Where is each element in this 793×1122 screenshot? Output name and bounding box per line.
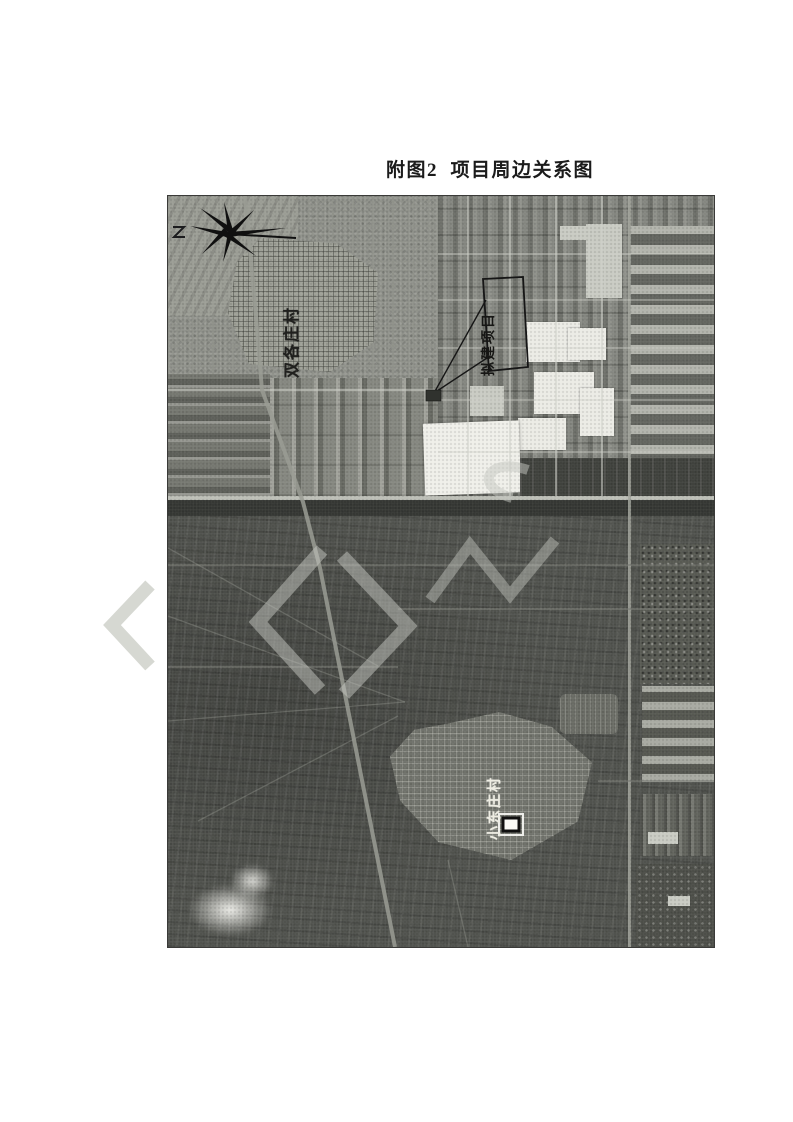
field-boundaries (168, 548, 468, 947)
north-z-mark (173, 227, 185, 237)
road-diagonal (245, 196, 395, 947)
document-page: 附图2 项目周边关系图 (0, 0, 793, 1122)
figure-title: 附图2 项目周边关系图 (386, 155, 594, 182)
map-annotation-layer (168, 196, 714, 947)
project-annotation (426, 277, 528, 401)
proposed-project-label: 拟建项目 (478, 312, 498, 376)
aerial-map: 双各庄村 拟建项目 小东庄村 (168, 196, 714, 947)
village-north-label: 双各庄村 (278, 306, 302, 378)
village-south-label: 小东庄村 (484, 776, 504, 840)
compass-rose-icon (190, 202, 296, 262)
project-site-building (426, 390, 441, 401)
